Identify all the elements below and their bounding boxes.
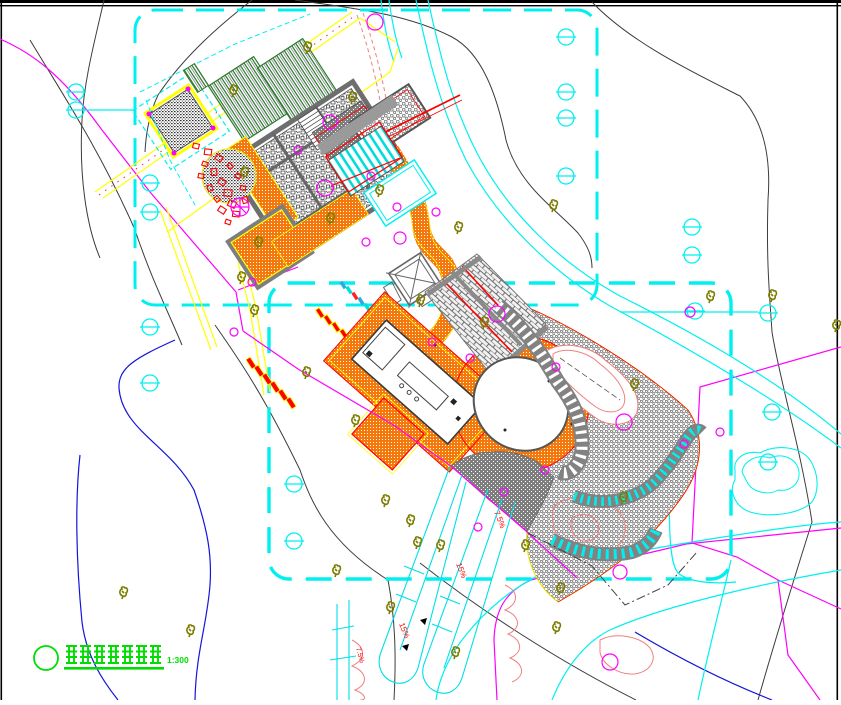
svg-text:1:300: 1:300 (167, 655, 189, 665)
